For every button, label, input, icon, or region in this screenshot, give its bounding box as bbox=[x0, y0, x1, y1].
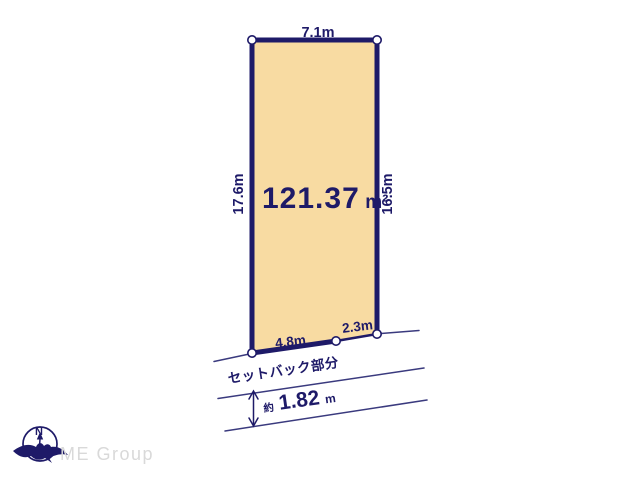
dim-label-left-depth: 17.6m bbox=[231, 173, 247, 214]
area-unit: m² bbox=[365, 192, 388, 213]
road-width-label: 約 1.82 m bbox=[261, 384, 336, 417]
setback-area-label: セットバック部分 bbox=[227, 354, 340, 386]
road-width-arrow bbox=[249, 391, 258, 426]
land-plot-diagram-page: 7.1m 17.6m 16.5m 4.8m 2.3m 121.37 m² セット… bbox=[0, 0, 640, 480]
corner-dot-bottom-middle bbox=[332, 337, 340, 345]
road-width-approx-prefix: 約 bbox=[263, 401, 275, 415]
land-plot-diagram: 7.1m 17.6m 16.5m 4.8m 2.3m 121.37 m² セット… bbox=[0, 0, 640, 480]
dim-label-top-width: 7.1m bbox=[301, 25, 334, 41]
corner-dot-top-left bbox=[248, 36, 256, 44]
area-value: 121.37 bbox=[262, 182, 360, 215]
road-width-unit: m bbox=[324, 391, 337, 406]
corner-dot-top-right bbox=[373, 36, 381, 44]
corner-dot-bottom-left bbox=[248, 349, 256, 357]
logo-text: ME Group bbox=[60, 444, 154, 464]
setback-boundary-line-right-segment bbox=[381, 331, 419, 334]
road-width-value: 1.82 bbox=[277, 386, 321, 414]
setback-boundary-line-left-segment bbox=[214, 355, 247, 362]
corner-dot-bottom-right bbox=[373, 330, 381, 338]
